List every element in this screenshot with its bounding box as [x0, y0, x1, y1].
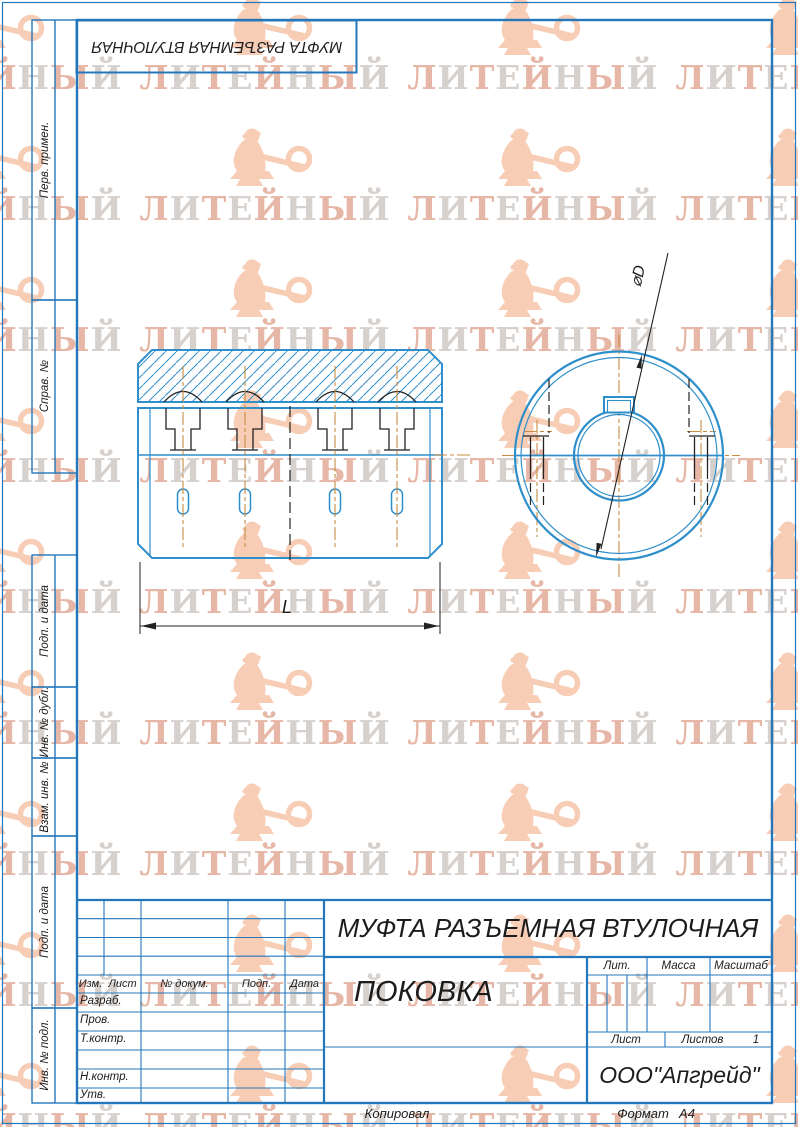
foundry-worker-icon — [483, 519, 583, 581]
foundry-worker-icon — [215, 781, 315, 843]
foundry-worker-icon — [0, 912, 47, 974]
watermark-tile: ЛИТЕЙНЫЙ — [399, 1043, 667, 1127]
foundry-worker-icon — [483, 912, 583, 974]
watermark-text: ЛИТЕЙНЫЙ — [407, 61, 658, 94]
drawing-sheet: { "page": { "stamp_top": "МУФТА РАЗЪЕМНА… — [0, 0, 798, 1127]
watermark-tile: ЛИТЕЙНЫЙ — [667, 781, 798, 912]
watermark-tile: ЛИТЕЙНЫЙ — [0, 388, 131, 519]
foundry-worker-icon — [751, 650, 798, 712]
foundry-worker-icon — [751, 781, 798, 843]
watermark-tile: ЛИТЕЙНЫЙ — [131, 519, 399, 650]
foundry-worker-icon — [0, 519, 47, 581]
watermark-tile: ЛИТЕЙНЫЙ — [667, 1043, 798, 1127]
watermark-tile: ЛИТЕЙНЫЙ — [131, 126, 399, 257]
watermark-tile: ЛИТЕЙНЫЙ — [399, 0, 667, 126]
watermark-tile: ЛИТЕЙНЫЙ — [0, 0, 131, 126]
watermark-text: ЛИТЕЙНЫЙ — [0, 978, 123, 1011]
watermark-text: ЛИТЕЙНЫЙ — [675, 847, 798, 880]
watermark-text: ЛИТЕЙНЫЙ — [0, 847, 123, 880]
watermark-text: ЛИТЕЙНЫЙ — [675, 585, 798, 618]
watermark-tile: ЛИТЕЙНЫЙ — [0, 781, 131, 912]
foundry-worker-icon — [483, 650, 583, 712]
foundry-worker-icon — [751, 388, 798, 450]
foundry-worker-icon — [0, 1043, 47, 1105]
watermark-tile: ЛИТЕЙНЫЙ — [0, 519, 131, 650]
watermark-tile: ЛИТЕЙНЫЙ — [399, 257, 667, 388]
watermark-tile: ЛИТЕЙНЫЙ — [667, 0, 798, 126]
watermark-tile: ЛИТЕЙНЫЙ — [131, 912, 399, 1043]
watermark-layer: ЛИТЕЙНЫЙЛИТЕЙНЫЙЛИТЕЙНЫЙЛИТЕЙНЫЙЛИТЕЙНЫЙ… — [0, 0, 798, 1127]
watermark-tile: ЛИТЕЙНЫЙ — [131, 257, 399, 388]
watermark-tile: ЛИТЕЙНЫЙ — [399, 126, 667, 257]
watermark-text: ЛИТЕЙНЫЙ — [139, 61, 390, 94]
foundry-worker-icon — [751, 912, 798, 974]
foundry-worker-icon — [215, 1043, 315, 1105]
watermark-text: ЛИТЕЙНЫЙ — [0, 61, 123, 94]
foundry-worker-icon — [483, 257, 583, 319]
watermark-tile: ЛИТЕЙНЫЙ — [399, 781, 667, 912]
watermark-text: ЛИТЕЙНЫЙ — [139, 716, 390, 749]
foundry-worker-icon — [0, 650, 47, 712]
watermark-tile: ЛИТЕЙНЫЙ — [131, 0, 399, 126]
watermark-text: ЛИТЕЙНЫЙ — [0, 323, 123, 356]
foundry-worker-icon — [751, 1043, 798, 1105]
foundry-worker-icon — [483, 388, 583, 450]
watermark-text: ЛИТЕЙНЫЙ — [675, 454, 798, 487]
foundry-worker-icon — [215, 257, 315, 319]
foundry-worker-icon — [215, 388, 315, 450]
watermark-text: ЛИТЕЙНЫЙ — [675, 716, 798, 749]
watermark-text: ЛИТЕЙНЫЙ — [407, 585, 658, 618]
watermark-tile: ЛИТЕЙНЫЙ — [399, 388, 667, 519]
watermark-text: ЛИТЕЙНЫЙ — [0, 585, 123, 618]
watermark-text: ЛИТЕЙНЫЙ — [675, 192, 798, 225]
watermark-text: ЛИТЕЙНЫЙ — [0, 716, 123, 749]
watermark-tile: ЛИТЕЙНЫЙ — [131, 1043, 399, 1127]
watermark-tile: ЛИТЕЙНЫЙ — [667, 912, 798, 1043]
watermark-tile: ЛИТЕЙНЫЙ — [0, 126, 131, 257]
watermark-text: ЛИТЕЙНЫЙ — [407, 978, 658, 1011]
watermark-text: ЛИТЕЙНЫЙ — [675, 323, 798, 356]
watermark-tile: ЛИТЕЙНЫЙ — [0, 912, 131, 1043]
watermark-text: ЛИТЕЙНЫЙ — [139, 585, 390, 618]
watermark-text: ЛИТЕЙНЫЙ — [407, 323, 658, 356]
watermark-text: ЛИТЕЙНЫЙ — [139, 454, 390, 487]
foundry-worker-icon — [751, 519, 798, 581]
foundry-worker-icon — [215, 126, 315, 188]
watermark-text: ЛИТЕЙНЫЙ — [407, 454, 658, 487]
watermark-text: ЛИТЕЙНЫЙ — [139, 978, 390, 1011]
foundry-worker-icon — [0, 781, 47, 843]
watermark-text: ЛИТЕЙНЫЙ — [139, 323, 390, 356]
foundry-worker-icon — [751, 257, 798, 319]
watermark-tile: ЛИТЕЙНЫЙ — [0, 257, 131, 388]
foundry-worker-icon — [215, 519, 315, 581]
foundry-worker-icon — [483, 1043, 583, 1105]
watermark-tile: ЛИТЕЙНЫЙ — [399, 519, 667, 650]
watermark-text: ЛИТЕЙНЫЙ — [407, 716, 658, 749]
watermark-text: ЛИТЕЙНЫЙ — [675, 978, 798, 1011]
foundry-worker-icon — [215, 912, 315, 974]
foundry-worker-icon — [751, 0, 798, 57]
watermark-tile: ЛИТЕЙНЫЙ — [131, 650, 399, 781]
foundry-worker-icon — [0, 0, 47, 57]
watermark-tile: ЛИТЕЙНЫЙ — [131, 388, 399, 519]
foundry-worker-icon — [751, 126, 798, 188]
watermark-tile: ЛИТЕЙНЫЙ — [667, 650, 798, 781]
foundry-worker-icon — [215, 0, 315, 57]
watermark-tile: ЛИТЕЙНЫЙ — [399, 650, 667, 781]
watermark-tile: ЛИТЕЙНЫЙ — [131, 781, 399, 912]
watermark-tile: ЛИТЕЙНЫЙ — [667, 126, 798, 257]
foundry-worker-icon — [0, 388, 47, 450]
watermark-tile: ЛИТЕЙНЫЙ — [0, 650, 131, 781]
watermark-tile: ЛИТЕЙНЫЙ — [0, 1043, 131, 1127]
foundry-worker-icon — [0, 257, 47, 319]
watermark-text: ЛИТЕЙНЫЙ — [675, 1109, 798, 1127]
watermark-text: ЛИТЕЙНЫЙ — [139, 847, 390, 880]
watermark-text: ЛИТЕЙНЫЙ — [0, 1109, 123, 1127]
watermark-tile: ЛИТЕЙНЫЙ — [667, 257, 798, 388]
watermark-text: ЛИТЕЙНЫЙ — [139, 192, 390, 225]
foundry-worker-icon — [215, 650, 315, 712]
watermark-tile: ЛИТЕЙНЫЙ — [399, 912, 667, 1043]
watermark-text: ЛИТЕЙНЫЙ — [139, 1109, 390, 1127]
foundry-worker-icon — [483, 0, 583, 57]
foundry-worker-icon — [0, 126, 47, 188]
watermark-text: ЛИТЕЙНЫЙ — [675, 61, 798, 94]
watermark-text: ЛИТЕЙНЫЙ — [0, 454, 123, 487]
foundry-worker-icon — [483, 126, 583, 188]
watermark-text: ЛИТЕЙНЫЙ — [407, 1109, 658, 1127]
watermark-tile: ЛИТЕЙНЫЙ — [667, 519, 798, 650]
watermark-tile: ЛИТЕЙНЫЙ — [667, 388, 798, 519]
watermark-text: ЛИТЕЙНЫЙ — [0, 192, 123, 225]
foundry-worker-icon — [483, 781, 583, 843]
watermark-text: ЛИТЕЙНЫЙ — [407, 847, 658, 880]
watermark-text: ЛИТЕЙНЫЙ — [407, 192, 658, 225]
